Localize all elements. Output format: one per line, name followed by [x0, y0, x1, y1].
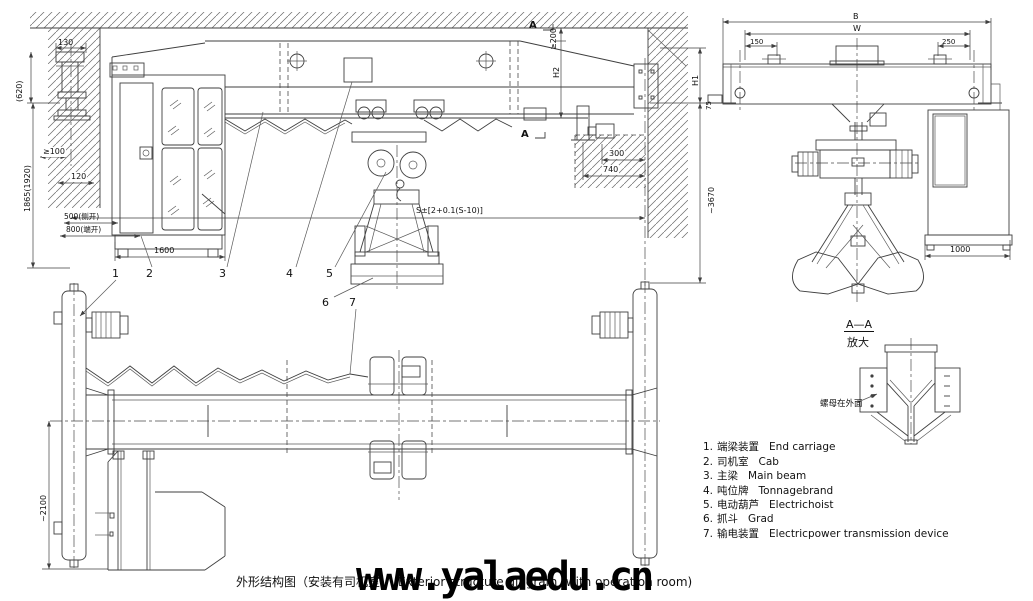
legend-item-grab: 6.抓斗Grad	[703, 513, 774, 526]
electric-hoist-front	[352, 100, 444, 201]
legend-en: End carriage	[769, 441, 835, 453]
grab-open-end-view	[792, 178, 923, 294]
legend-en: Tonnagebrand	[759, 485, 834, 497]
hoist-trolley-plan	[368, 350, 428, 500]
legend-item-electric-hoist: 5.电动葫芦Electrichoist	[703, 499, 834, 512]
legend-en: Electricpower transmission device	[769, 528, 949, 540]
cab-front	[110, 63, 225, 257]
dim-ge200: ≥200	[549, 28, 559, 50]
dim-1000: 1000	[950, 245, 970, 255]
legend-item-end-carriage: 1.端梁装置End carriage	[703, 441, 835, 454]
part-label-2: 2	[146, 268, 153, 280]
dim-130: 130	[58, 38, 73, 48]
end-view-hoist	[792, 104, 920, 178]
dim-1865-1920: 1865(1920)	[23, 165, 33, 212]
detail-title-aa: A—A	[844, 318, 874, 332]
part-label-5: 5	[326, 268, 333, 280]
crane-engineering-drawing: 130 (620) 1865(1920) ≥100 120 500(侧开) 80…	[0, 0, 1033, 601]
legend-item-cab: 2.司机室Cab	[703, 456, 779, 469]
section-mark-a-bottom: A	[521, 129, 529, 140]
dim-2100: ~2100	[39, 495, 49, 522]
legend-cn: 电动葫芦	[717, 499, 759, 511]
end-view-beam	[706, 46, 1002, 112]
legend-cn: 吨位牌	[717, 485, 749, 497]
dim-150: 150	[750, 37, 763, 47]
plan-view-dimensions	[42, 421, 108, 569]
legend-num: 6.	[703, 513, 713, 525]
legend-en: Main beam	[748, 470, 806, 482]
dim-ge100: ≥100	[42, 147, 66, 157]
dim-span-formula: S±[2+0.1(S-10)]	[416, 206, 483, 216]
legend-cn: 端梁装置	[717, 441, 759, 453]
legend-item-main-beam: 3.主梁Main beam	[703, 470, 806, 483]
dim-120: 120	[70, 172, 87, 182]
plan-view	[42, 281, 660, 570]
dim-500-side-open: 500(侧开)	[64, 212, 99, 222]
left-end-carriage-plan	[54, 283, 128, 568]
part-label-4: 4	[286, 268, 293, 280]
legend-num: 5.	[703, 499, 713, 511]
dim-300: 300	[608, 149, 625, 159]
detail-view-aa	[858, 338, 960, 444]
dim-620: (620)	[15, 80, 25, 102]
section-mark-a-top: A	[529, 20, 537, 31]
legend-en: Electrichoist	[769, 499, 834, 511]
dim-h2: H2	[552, 67, 562, 78]
legend-num: 2.	[703, 456, 713, 468]
end-view	[706, 18, 1012, 305]
legend-num: 3.	[703, 470, 713, 482]
legend-item-tonnage-brand: 4.吨位牌Tonnagebrand	[703, 485, 833, 498]
legend-cn: 输电装置	[717, 528, 759, 540]
detail-note-nut-outside: 螺母在外面	[820, 397, 863, 409]
part-label-1: 1	[112, 268, 119, 280]
drawing-lines	[0, 0, 1033, 601]
dim-800-end-open: 800(端开)	[66, 225, 101, 235]
dim-h1: H1	[691, 75, 701, 86]
dim-1600: 1600	[154, 246, 174, 256]
legend-num: 1.	[703, 441, 713, 453]
part-label-6: 6	[322, 297, 329, 309]
detail-subtitle-enlarged: 放大	[847, 334, 869, 350]
dim-w: W	[853, 24, 861, 34]
dim-740: 740	[602, 165, 619, 175]
legend-cn: 抓斗	[717, 513, 738, 525]
power-cabinet	[925, 110, 1012, 250]
legend-cn: 司机室	[717, 456, 749, 468]
part-label-7: 7	[349, 297, 356, 309]
dim-b: B	[853, 12, 859, 22]
cab-plan	[95, 451, 225, 570]
watermark-text: www.yalaedu.cn	[356, 554, 651, 600]
legend-en: Grad	[748, 513, 774, 525]
legend-item-power-transmission: 7.输电装置Electricpower transmission device	[703, 528, 949, 541]
dim-3670: ~3670	[707, 187, 717, 214]
dim-250: 250	[942, 37, 955, 47]
front-view	[27, 12, 706, 374]
legend-en: Cab	[759, 456, 779, 468]
grab-closed-front	[351, 145, 443, 292]
dim-75: 75	[704, 101, 714, 110]
legend-cn: 主梁	[717, 470, 738, 482]
tonnage-plate	[344, 58, 372, 82]
right-end-carriage-plan	[592, 281, 657, 566]
legend-num: 7.	[703, 528, 713, 540]
festoon-cable-plan	[86, 366, 368, 386]
part-label-3: 3	[219, 268, 226, 280]
legend-num: 4.	[703, 485, 713, 497]
